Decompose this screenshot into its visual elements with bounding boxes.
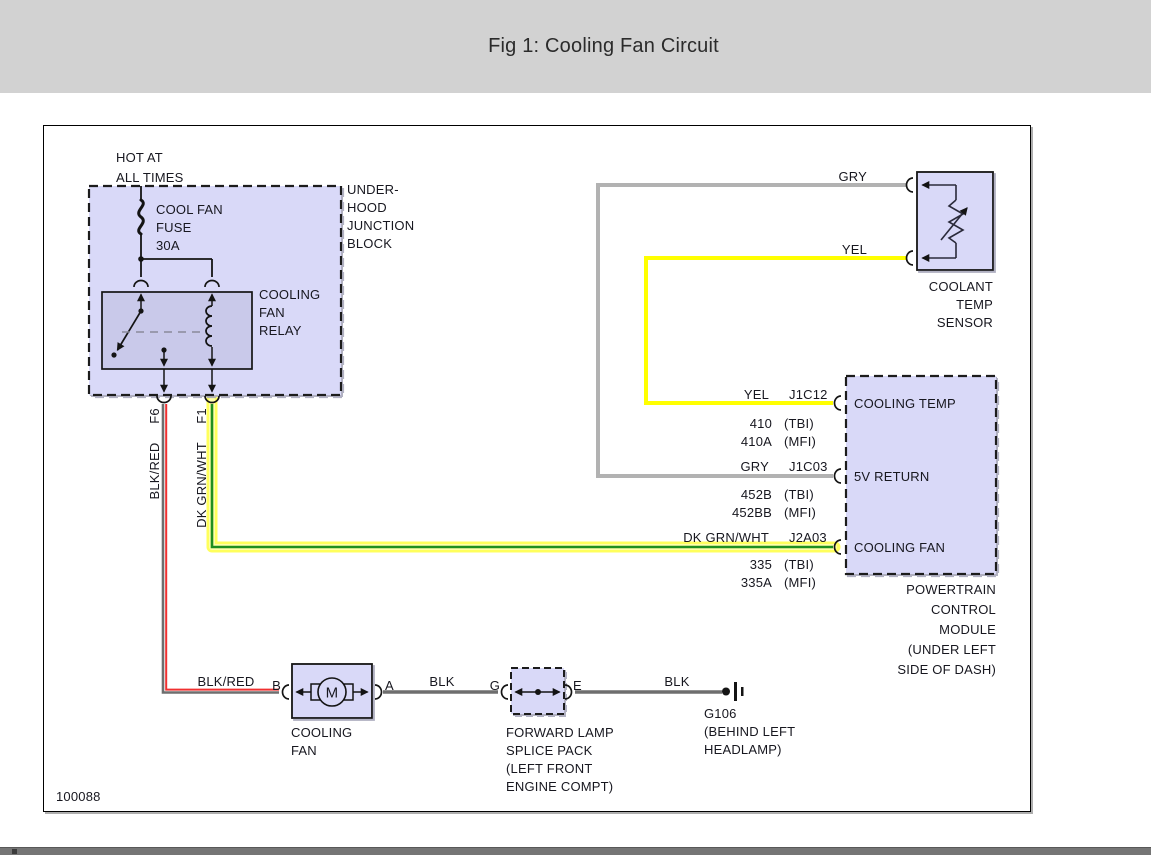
pcm-pin1-wire: GRY <box>740 459 769 474</box>
pcm-caption-2: CONTROL <box>931 602 996 617</box>
connector-arc <box>565 685 572 699</box>
junction-block-label-2: HOOD <box>347 200 387 215</box>
motor-caption-2: FAN <box>291 743 317 758</box>
wire-label-yel-sensor: YEL <box>842 242 867 257</box>
pcm-pin2-name: COOLING FAN <box>854 540 945 555</box>
pcm-caption-4: (UNDER LEFT <box>908 642 996 657</box>
pcm-pin2-circuit0-num: 335 <box>750 557 772 572</box>
splice-caption-1: FORWARD LAMP <box>506 725 614 740</box>
pcm-pin1-connector: J1C03 <box>789 459 828 474</box>
pin-label-f6: F6 <box>147 408 162 424</box>
motor-pin-a: A <box>385 678 394 693</box>
pcm-pin0-wire: YEL <box>744 387 769 402</box>
pcm-pin0-circuit0-sys: (TBI) <box>784 416 814 431</box>
pcm-pin1-circuit1-sys: (MFI) <box>784 505 816 520</box>
wire-label-blk-red-bottom: BLK/RED <box>197 674 254 689</box>
ground-dot <box>722 688 730 696</box>
wire-label-blk-1: BLK <box>429 674 454 689</box>
wire-label-blk-red-vertical: BLK/RED <box>147 442 162 499</box>
splice-caption-4: ENGINE COMPT) <box>506 779 613 794</box>
sensor-caption-1: COOLANT <box>929 279 993 294</box>
connector-arc <box>835 396 842 410</box>
connector-arc <box>157 396 171 403</box>
splice-dot <box>535 689 541 695</box>
switch-contact-dot <box>111 352 116 357</box>
splice-caption-2: SPLICE PACK <box>506 743 593 758</box>
pcm-pin2-wire: DK GRN/WHT <box>683 530 769 545</box>
connector-arc <box>835 469 842 483</box>
power-label-line2: ALL TIMES <box>116 170 184 185</box>
pcm-pin2-circuit1-sys: (MFI) <box>784 575 816 590</box>
figure-id: 100088 <box>56 789 101 804</box>
splice-pin-g: G <box>490 678 500 693</box>
relay-label-3: RELAY <box>259 323 302 338</box>
sensor-caption-3: SENSOR <box>937 315 993 330</box>
ground-id: G106 <box>704 706 737 721</box>
pcm-pin0-circuit0-num: 410 <box>750 416 772 431</box>
connector-arc <box>502 685 509 699</box>
connector-arc <box>283 685 290 699</box>
junction-block-label-1: UNDER- <box>347 182 399 197</box>
pcm-pin1-circuit0-sys: (TBI) <box>784 487 814 502</box>
pin-label-f1: F1 <box>194 408 209 424</box>
wiring-svg: M HOT AT ALL TIMES COOL FAN FUSE 30A COO… <box>44 126 1030 811</box>
pcm-pin2-circuit0-sys: (TBI) <box>784 557 814 572</box>
junction-block-label-3: JUNCTION <box>347 218 414 233</box>
pcm-pin0-circuit1-sys: (MFI) <box>784 434 816 449</box>
relay-box <box>102 292 252 369</box>
sensor-caption-2: TEMP <box>956 297 993 312</box>
horizontal-scrollbar[interactable] <box>0 847 1151 855</box>
wire-label-dk-grn-wht-vertical: DK GRN/WHT <box>194 442 209 528</box>
pcm-pin0-name: COOLING TEMP <box>854 396 956 411</box>
ground-caption-1: (BEHIND LEFT <box>704 724 795 739</box>
junction-block-label-4: BLOCK <box>347 236 392 251</box>
motor-caption-1: COOLING <box>291 725 352 740</box>
pcm-pin2-circuit1-num: 335A <box>741 575 772 590</box>
figure-title: Fig 1: Cooling Fan Circuit <box>488 35 719 58</box>
header-bar: Fig 1: Cooling Fan Circuit <box>0 0 1151 93</box>
pcm-pin1-circuit1-num: 452BB <box>732 505 772 520</box>
motor-letter: M <box>326 685 339 702</box>
fuse-label-2: FUSE <box>156 220 192 235</box>
pcm-caption-5: SIDE OF DASH) <box>897 662 996 677</box>
pcm-pin0-circuit1-num: 410A <box>741 434 772 449</box>
pcm-pin2-connector: J2A03 <box>789 530 827 545</box>
pcm-caption-3: MODULE <box>939 622 996 637</box>
pcm-caption-1: POWERTRAIN <box>906 582 996 597</box>
ground-bar-short <box>741 687 744 696</box>
fuse-label-3: 30A <box>156 238 180 253</box>
ground-bar-tall <box>734 682 737 701</box>
splice-caption-3: (LEFT FRONT <box>506 761 592 776</box>
scrollbar-notch[interactable] <box>12 849 17 854</box>
diagram-canvas: M HOT AT ALL TIMES COOL FAN FUSE 30A COO… <box>43 125 1031 812</box>
motor-pin-b: B <box>272 678 281 693</box>
pcm-pin0-connector: J1C12 <box>789 387 828 402</box>
fuse-label-1: COOL FAN <box>156 202 223 217</box>
connector-arc <box>375 685 382 699</box>
pcm-pin1-name: 5V RETURN <box>854 469 929 484</box>
coolant-temp-sensor-box <box>917 172 993 270</box>
relay-label-1: COOLING <box>259 287 320 302</box>
ground-caption-2: HEADLAMP) <box>704 742 782 757</box>
power-label-line1: HOT AT <box>116 150 163 165</box>
splice-pin-e: E <box>573 678 582 693</box>
relay-label-2: FAN <box>259 305 285 320</box>
pcm-pin1-circuit0-num: 452B <box>741 487 772 502</box>
connector-arc <box>907 251 914 265</box>
wire-label-blk-2: BLK <box>664 674 689 689</box>
switch-output-dot <box>161 347 166 352</box>
wire-label-gry-sensor: GRY <box>838 169 867 184</box>
connector-arc <box>907 178 914 192</box>
